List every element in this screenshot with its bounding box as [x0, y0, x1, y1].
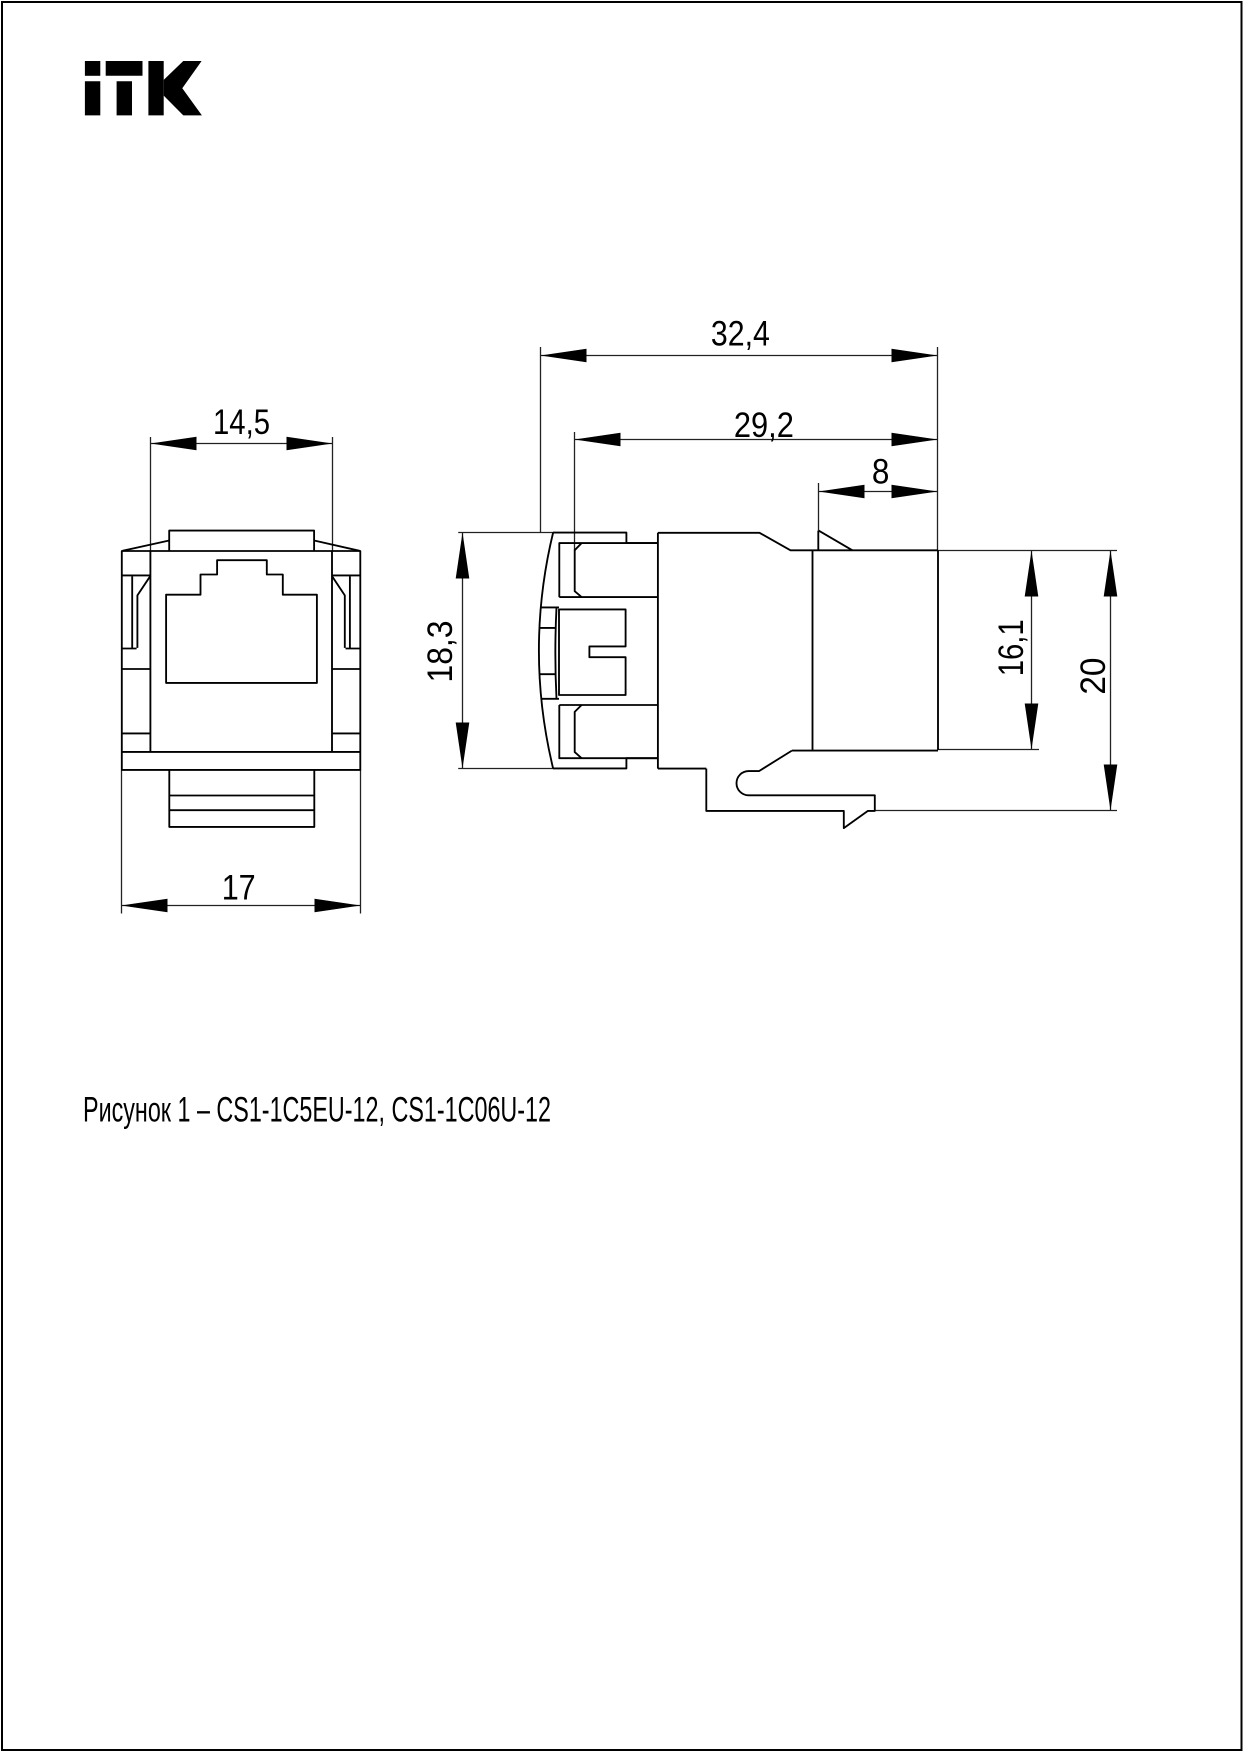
- svg-text:16,1: 16,1: [992, 619, 1031, 676]
- svg-text:18,3: 18,3: [421, 621, 460, 683]
- svg-text:20: 20: [1074, 658, 1113, 695]
- svg-text:29,2: 29,2: [734, 406, 794, 445]
- svg-text:17: 17: [222, 868, 256, 907]
- svg-text:14,5: 14,5: [213, 403, 270, 442]
- svg-text:32,4: 32,4: [711, 315, 770, 354]
- svg-text:Рисунок 1 – CS1-1C5EU-12, CS1-: Рисунок 1 – CS1-1C5EU-12, CS1-1C06U-12: [83, 1090, 551, 1129]
- svg-text:8: 8: [872, 453, 890, 492]
